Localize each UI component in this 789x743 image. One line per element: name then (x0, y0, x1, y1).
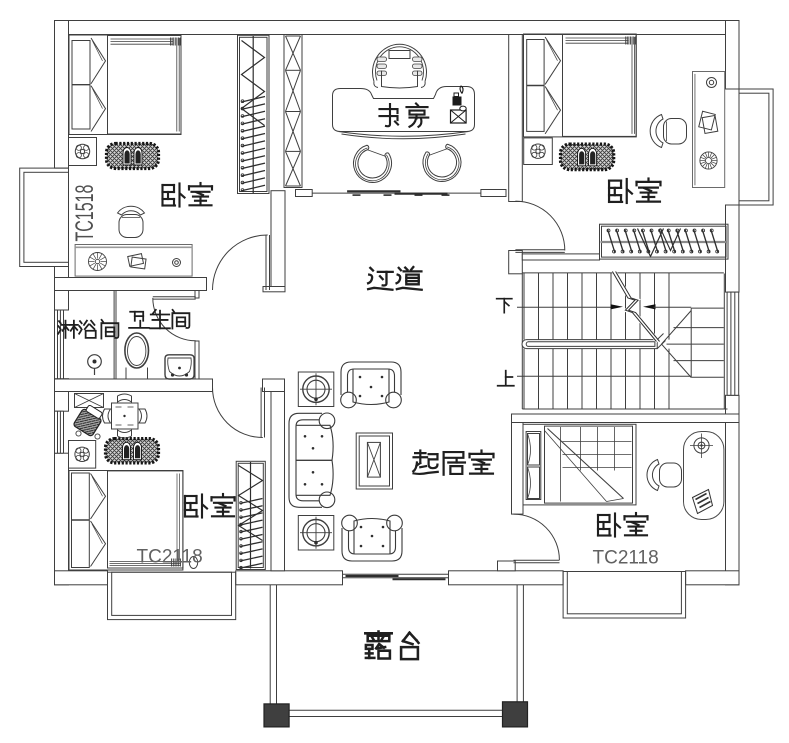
svg-text:TC2118: TC2118 (593, 548, 659, 569)
svg-text:TC2118: TC2118 (137, 547, 203, 568)
svg-text:TC1518: TC1518 (72, 185, 99, 242)
